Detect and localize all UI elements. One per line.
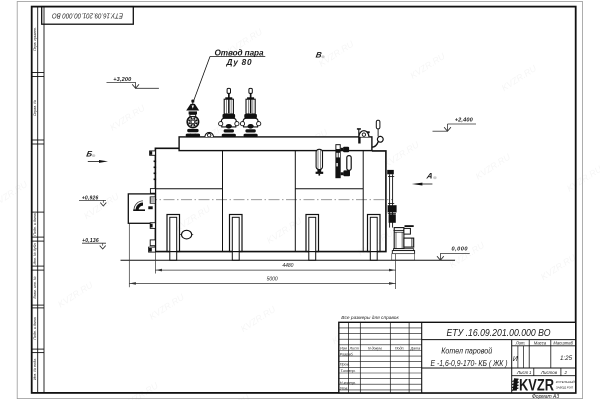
svg-text:Лит.: Лит.	[515, 340, 526, 345]
svg-text:+2,400: +2,400	[455, 118, 474, 124]
svg-text:Пров.: Пров.	[340, 362, 350, 366]
svg-text:Справ. №: Справ. №	[33, 100, 37, 116]
svg-text:Масштаб: Масштаб	[553, 340, 573, 345]
svg-text:Подп. и дата: Подп. и дата	[33, 213, 37, 236]
svg-text:5000: 5000	[267, 277, 278, 283]
svg-text:Разраб.: Разраб.	[340, 352, 354, 356]
svg-text:Инв. № дубл.: Инв. № дубл.	[33, 242, 37, 264]
svg-text:Взам. инв. №: Взам. инв. №	[33, 276, 37, 298]
svg-text:ЕТУ.16.09.201.00.000 ВО: ЕТУ.16.09.201.00.000 ВО	[52, 12, 123, 21]
svg-text:Отвод пара: Отвод пара	[215, 48, 264, 57]
svg-text:Подп.: Подп.	[395, 346, 405, 350]
svg-text:2: 2	[564, 370, 568, 375]
svg-text:Т.контр.: Т.контр.	[340, 369, 355, 373]
svg-text:ЕТУ .16.09.201.00.000 ВО: ЕТУ .16.09.201.00.000 ВО	[447, 327, 551, 339]
svg-text:Дата: Дата	[410, 346, 420, 350]
svg-text:Утв.: Утв.	[340, 386, 349, 390]
svg-text:Изм: Изм	[340, 346, 347, 350]
svg-text:Листов: Листов	[540, 370, 558, 375]
svg-text:Все размеры для справок: Все размеры для справок	[341, 315, 399, 321]
svg-text:Перв. примен.: Перв. примен.	[33, 27, 37, 51]
svg-text:Масса: Масса	[534, 340, 547, 345]
svg-text:Лист: Лист	[349, 346, 359, 350]
svg-text:Ду 80: Ду 80	[226, 58, 252, 67]
svg-text:ЗАВОД РЭП: ЗАВОД РЭП	[556, 385, 574, 389]
svg-text:1:25: 1:25	[560, 355, 573, 362]
svg-text:Е -1,6-0,9-170- КБ ( ЖК ): Е -1,6-0,9-170- КБ ( ЖК )	[431, 358, 508, 368]
svg-text:N докум.: N докум.	[368, 346, 383, 350]
svg-text:Инв. № подл.: Инв. № подл.	[33, 358, 37, 380]
svg-text:Подп. и дата: Подп. и дата	[33, 317, 37, 340]
svg-text:Формат А3: Формат А3	[532, 394, 560, 400]
svg-text:КОТЕЛЬНЫЙ: КОТЕЛЬНЫЙ	[556, 380, 576, 384]
svg-text:Н.контр.: Н.контр.	[340, 381, 356, 385]
svg-text:4480: 4480	[282, 263, 293, 269]
svg-text:KVZR: KVZR	[519, 376, 554, 394]
svg-text:Котел паровой: Котел паровой	[441, 346, 492, 356]
svg-text:0,000: 0,000	[452, 247, 469, 253]
svg-text:Лист: Лист	[516, 370, 529, 375]
